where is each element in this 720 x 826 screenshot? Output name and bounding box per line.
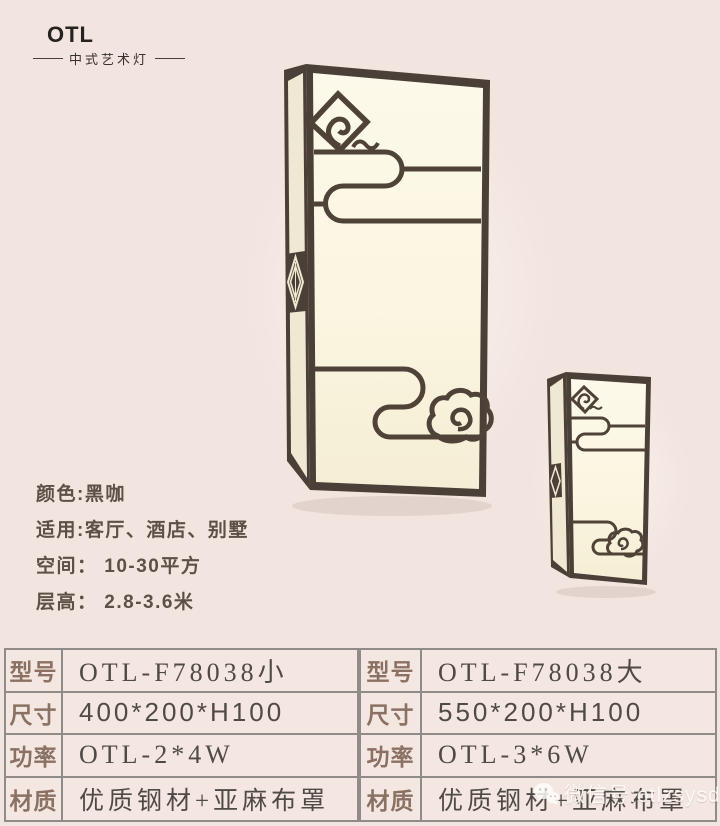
product-poster: OTL 中式艺术灯 xyxy=(0,0,720,826)
large-lamp-shade xyxy=(313,73,483,489)
info-space: 空间： 10-30平方 xyxy=(36,555,249,578)
spec-value-material: 优质钢材+亚麻布罩 xyxy=(422,778,715,821)
brand-logo: OTL xyxy=(33,24,183,46)
spec-value-size: 400*200*H100 xyxy=(63,693,357,736)
small-lamp-frame xyxy=(566,372,651,585)
small-lamp-cloud-motif-bottom xyxy=(571,522,643,556)
small-lamp-side-frame xyxy=(547,372,570,578)
spec-label-size: 尺寸 xyxy=(6,693,63,736)
spec-label-size: 尺寸 xyxy=(361,693,422,736)
brand-tagline: 中式艺术灯 xyxy=(33,49,183,68)
product-info-block: 颜色:黑咖 适用:客厅、酒店、别墅 空间： 10-30平方 层高： 2.8-3.… xyxy=(36,483,249,627)
brand-block: OTL 中式艺术灯 xyxy=(33,24,183,68)
large-lamp-cloud-motif-bottom xyxy=(314,369,491,441)
small-lamp-glow xyxy=(495,330,720,630)
small-lamp-cloud-motif-top xyxy=(571,387,645,450)
spec-value-size: 550*200*H100 xyxy=(422,693,715,736)
info-color: 颜色:黑咖 xyxy=(36,483,249,506)
large-lamp-side-frame xyxy=(284,64,310,490)
spec-label-power: 功率 xyxy=(361,735,422,778)
large-lamp-image xyxy=(284,64,492,516)
spec-label-material: 材质 xyxy=(361,778,422,821)
large-lamp-side-ornament xyxy=(286,251,307,313)
small-lamp-side-shade xyxy=(550,378,567,572)
spec-label-power: 功率 xyxy=(6,735,63,778)
spec-value-model: OTL-F78038小 xyxy=(63,650,357,693)
spec-tables: 型号 OTL-F78038小 尺寸 400*200*H100 功率 OTL-2*… xyxy=(4,648,717,822)
large-lamp-shadow xyxy=(292,496,492,516)
spec-value-model: OTL-F78038大 xyxy=(422,650,715,693)
spec-label-model: 型号 xyxy=(6,650,63,693)
small-lamp-shade xyxy=(571,379,646,580)
spec-label-material: 材质 xyxy=(6,778,63,821)
large-lamp-frame xyxy=(306,64,490,497)
small-lamp-side-ornament xyxy=(549,463,562,498)
spec-label-model: 型号 xyxy=(361,650,422,693)
tagline-dash-right xyxy=(155,58,185,59)
large-lamp-cloud-motif-top xyxy=(311,94,481,221)
spec-value-material: 优质钢材+亚麻布罩 xyxy=(63,778,357,821)
small-lamp-image xyxy=(547,372,656,598)
small-lamp-shadow xyxy=(556,586,656,598)
large-lamp-side-shade xyxy=(288,73,307,478)
spec-value-power: OTL-3*6W xyxy=(422,735,715,778)
spec-value-power: OTL-2*4W xyxy=(63,735,357,778)
spec-table-large-model: 型号 OTL-F78038大 尺寸 550*200*H100 功率 OTL-3*… xyxy=(359,648,717,822)
spec-table-small-model: 型号 OTL-F78038小 尺寸 400*200*H100 功率 OTL-2*… xyxy=(4,648,359,822)
tagline-text: 中式艺术灯 xyxy=(69,49,149,68)
info-usage: 适用:客厅、酒店、别墅 xyxy=(36,519,249,542)
info-ceiling-height: 层高： 2.8-3.6米 xyxy=(36,591,249,614)
tagline-dash-left xyxy=(33,58,63,59)
